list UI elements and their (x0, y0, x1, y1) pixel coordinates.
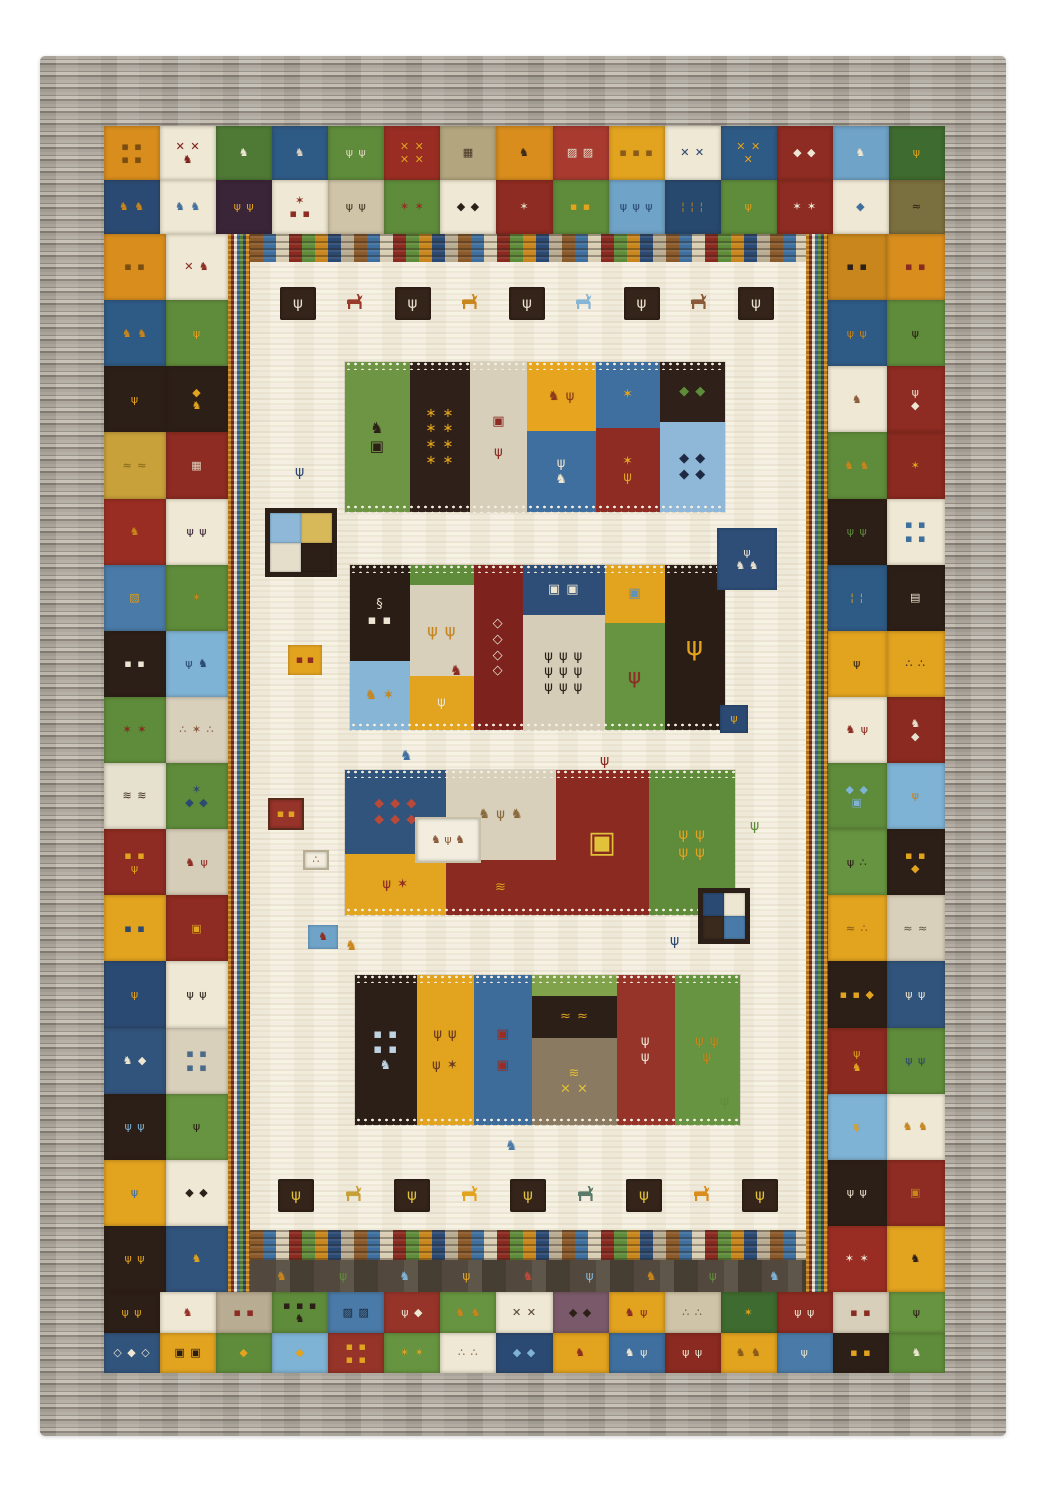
panel-motif-icon: ▪ ▪ ◆ (840, 988, 875, 1001)
dark-animal-band: ♞ψ♞ψ♞ψ♞ψ♞ (250, 1260, 806, 1292)
cluster-column: ψ ψ ψ ✶ (417, 975, 475, 1125)
field-accent-square: ♞ ψ ♞ (415, 817, 481, 863)
quad-cell (703, 916, 724, 939)
panel-motif-icon: ▣ ▣ (548, 582, 580, 598)
patch-cell: ▤ (887, 565, 946, 631)
patch-cell: ψ ψ (328, 126, 384, 180)
panel-motif-icon: ✶ ✶ (123, 723, 148, 736)
patch-cell: ▪ ▪ ▪ ▪ (104, 126, 160, 180)
panel-motif-icon: ψ ♞ (185, 657, 209, 670)
panel-motif-icon: ▪ ▪ ψ (124, 849, 145, 875)
patch-cell: ◆ (272, 1333, 328, 1374)
patch-cell: ✕ ✕ ✕ (721, 126, 777, 180)
tree-square-motif: ψ (738, 287, 774, 320)
patch-cell: ♞ (216, 126, 272, 180)
band-motif-icon: ψ (339, 1270, 347, 1282)
cluster-column: ▣ ψ (470, 362, 527, 512)
cluster-column: ♞ ψψ ♞ (527, 362, 595, 512)
patch-cell: ψ (166, 300, 228, 366)
scatter-motif-icon: ψ (670, 934, 679, 948)
panel-motif-icon: ◆ (239, 1346, 248, 1359)
patch-cluster: ▪ ▪ ▪ ▪ ♞ψ ψ ψ ✶▣ ▣≈ ≈≋ ✕ ✕ψ ψψ ψ ψ (355, 975, 740, 1125)
quad-cell (270, 543, 301, 573)
cluster-block: ✶ ψ (596, 428, 661, 512)
patch-cell: ♞ ♞ (104, 300, 166, 366)
panel-motif-icon: ψ ♞ ♞ (735, 546, 758, 572)
patch-cell: ≈ ≈ (104, 432, 166, 498)
patch-cell: ψ ψ (216, 180, 272, 234)
patch-cell: ψ (721, 180, 777, 234)
patch-cell: ≈ (889, 180, 945, 234)
patch-border-bottom: ψ ψ♞▪ ▪▪ ▪ ▪ ♞▨ ▨ψ ◆♞ ♞✕ ✕◆ ◆♞ ψ∴ ∴✶ψ ψ▪… (104, 1292, 945, 1373)
patch-cell: ♞ ψ (828, 697, 887, 763)
panel-motif-icon: ✶ ✶ (845, 1252, 870, 1265)
panel-motif-icon: ψ ψ ψ (620, 200, 654, 213)
panel-motif-icon: ψ ψ ψ ✶ (432, 1027, 459, 1074)
panel-motif-icon: ψ (131, 1186, 139, 1199)
panel-motif-icon: ▪ ▪ (847, 260, 868, 273)
panel-motif-icon: ▪ ▪ (850, 1306, 871, 1319)
panel-motif-icon: ¦ ¦ ¦ (681, 200, 704, 213)
panel-motif-icon: ≈ ≈ (903, 922, 928, 935)
panel-motif-icon: ✶ (519, 200, 529, 213)
patch-cluster: ♞ ▣∗ ∗ ∗ ∗ ∗ ∗ ∗ ∗▣ ψ♞ ψψ ♞✶✶ ψ◆ ◆◆ ◆ ◆ … (345, 362, 725, 512)
patch-border-top: ▪ ▪ ▪ ▪✕ ✕ ♞♞♞ψ ψ✕ ✕ ✕ ✕▦♞▨ ▨▪ ▪ ▪✕ ✕✕ ✕… (104, 126, 945, 234)
patch-cell: ♞ (889, 1333, 945, 1374)
panel-motif-icon: ♞ ◆ (123, 1054, 148, 1067)
patch-border-right: ▪ ▪ψ ψ♞♞ ♞ψ ψ¦ ¦ψ♞ ψ◆ ◆ ▣ψ ∴≈ ∴▪ ▪ ◆ψ ♞ψ… (828, 234, 945, 1292)
field-accent-square: ▪ ▪ (288, 645, 322, 675)
tree-square-motif: ψ (394, 1179, 430, 1212)
panel-motif-icon: ◆ ◆ ◆ ◆ ◆ ◆ (374, 796, 417, 827)
patch-cell: ◆ (833, 180, 889, 234)
panel-motif-icon: ψ ψ (346, 200, 367, 213)
panel-motif-icon: ψ ♞ (555, 456, 568, 487)
panel-motif-icon: ✶ ψ (622, 454, 634, 485)
tree-square-motif: ψ (278, 1179, 314, 1212)
patch-cell: ▣ ▣ (160, 1333, 216, 1374)
patch-cell: ¦ ¦ ¦ (665, 180, 721, 234)
panel-motif-icon: ψ ψ (124, 1120, 145, 1133)
panel-motif-icon: ψ (912, 789, 920, 802)
panel-motif-icon: ∴ (313, 853, 320, 866)
panel-motif-icon: ♞ ψ ♞ (478, 807, 523, 823)
patch-cell: ψ (887, 300, 946, 366)
panel-motif-icon: ψ (853, 1120, 861, 1133)
panel-motif-icon: ψ ψ (682, 1346, 703, 1359)
patch-cell: ψ ψ (828, 1160, 887, 1226)
patch-cell: ▪ ▪ (833, 1292, 889, 1333)
patch-cell: ψ ♞ (166, 631, 228, 697)
patch-cell: ▣ (166, 895, 228, 961)
patch-column: ✕ ♞ψ◆ ♞▦ψ ψ✶ψ ♞∴ ✶ ∴✶ ◆ ◆♞ ψ▣ψ ψ▪ ▪ ▪ ▪ψ… (166, 234, 228, 1292)
patch-cell: ♞ ♞ (887, 1094, 946, 1160)
panel-motif-icon: ▪ ▪ ▪ ▪ (121, 140, 142, 166)
panel-motif-icon: ≋ (495, 880, 507, 896)
goat-motif-icon (459, 293, 481, 313)
cluster-column: § ▪ ▪♞ ✶ (350, 565, 410, 730)
cluster-column: ψ ψ ψ (675, 975, 740, 1125)
patch-cell: ▪ ▪ ▪ ▪ (166, 1028, 228, 1094)
scatter-motif-icon: ♞ (450, 664, 463, 678)
patch-cell: ▪ ▪ (553, 180, 609, 234)
brick-band-top (250, 234, 806, 262)
patch-cell: ♞ ψ (166, 829, 228, 895)
panel-motif-icon: ψ ψ (427, 621, 456, 640)
panel-motif-icon: ψ ψ ψ ψ ψ ψ ψ ψ ψ (544, 649, 583, 696)
speckle-edge (350, 564, 725, 573)
branch-motif-icon: ψ (639, 1186, 649, 1204)
panel-motif-icon: ▪ ▪ (570, 200, 591, 213)
band-motif-icon: ♞ (523, 1270, 534, 1282)
strand-band-right (806, 234, 828, 1292)
panel-motif-icon: ♞ ψ ♞ (431, 833, 465, 846)
panel-motif-icon: ψ (745, 200, 753, 213)
patch-cell: ψ ψ (104, 1226, 166, 1292)
patch-cell: ∴ ∴ (665, 1292, 721, 1333)
panel-motif-icon: ✶ ✶ (400, 1346, 425, 1359)
panel-motif-icon: ♞ ♞ (122, 327, 148, 340)
panel-motif-icon: ▪ ▪ (124, 922, 145, 935)
band-motif-icon: ♞ (769, 1270, 780, 1282)
panel-motif-icon: ψ ∴ (847, 856, 868, 869)
patch-cell: ψ (828, 631, 887, 697)
panel-motif-icon: ψ ψ (186, 525, 207, 538)
panel-motif-icon: ψ ◆ (911, 386, 920, 412)
cluster-column: ♞ ▣ (345, 362, 410, 512)
patch-cell: ✶ ✶ (384, 1333, 440, 1374)
panel-motif-icon: ψ (628, 664, 642, 688)
patch-cell: ▪ ▪ (104, 234, 166, 300)
patch-cell: ψ (104, 1160, 166, 1226)
cluster-column: ▣ψ (605, 565, 665, 730)
panel-motif-icon: ▣ (191, 922, 202, 935)
panel-motif-icon: ◆ (295, 1346, 304, 1359)
tree-square-motif: ψ (626, 1179, 662, 1212)
panel-motif-icon: ▪ ▪ (850, 1346, 871, 1359)
panel-motif-icon: ♞ (192, 1252, 203, 1265)
patch-cell: ▪ ▪ ◆ (887, 829, 946, 895)
panel-motif-icon: § ▪ ▪ (368, 597, 393, 628)
scatter-motif-icon: ψ (720, 1094, 729, 1108)
patch-row: ▪ ▪ ▪ ▪✕ ✕ ♞♞♞ψ ψ✕ ✕ ✕ ✕▦♞▨ ▨▪ ▪ ▪✕ ✕✕ ✕… (104, 126, 945, 180)
patch-cell: ▪ ▪ (828, 234, 887, 300)
quad-cell (301, 543, 332, 573)
scatter-motif-icon: ♞ (505, 1139, 518, 1153)
panel-motif-icon: ♞ (519, 146, 530, 159)
patch-cell: ♞ ♞ (721, 1333, 777, 1374)
panel-motif-icon: ψ ψ ψ (695, 1034, 719, 1065)
tree-square-motif: ψ (280, 287, 316, 320)
cluster-block: ▣ ▣ (474, 975, 532, 1125)
patch-cell: ∴ ✶ ∴ (166, 697, 228, 763)
patch-cell: ▦ (440, 126, 496, 180)
field-accent-quad (698, 888, 750, 944)
panel-motif-icon: ♞ (575, 1346, 586, 1359)
patch-cell: ψ ♞ (828, 1028, 887, 1094)
panel-motif-icon: ✶ ▪ ▪ (290, 194, 311, 220)
patch-cell: ◆ ◆ (553, 1292, 609, 1333)
patch-cell: ♞ ♞ (104, 180, 160, 234)
panel-motif-icon: ♞ ♞ (844, 459, 870, 472)
panel-motif-icon: ✶ (911, 459, 921, 472)
branch-motif-icon: ψ (755, 1186, 765, 1204)
patch-cell: ψ ∴ (828, 829, 887, 895)
field-accent-square: ψ (720, 705, 748, 733)
patch-cell: ◇ ◆ ◇ (104, 1333, 160, 1374)
panel-motif-icon: ♞ ◆ (910, 717, 921, 743)
patch-cell: ψ (887, 763, 946, 829)
patch-cell: ◆ ◆ (166, 1160, 228, 1226)
panel-motif-icon: ψ ◆ (401, 1306, 423, 1319)
branch-motif-icon: ψ (408, 294, 418, 312)
panel-motif-icon: ∴ ∴ (906, 657, 927, 670)
cluster-column: ▣ ▣ (474, 975, 532, 1125)
patch-cell: ψ (889, 126, 945, 180)
panel-motif-icon: ◆ ◆ (793, 146, 816, 159)
tree-square-motif: ψ (742, 1179, 778, 1212)
panel-motif-icon: ▣ (628, 586, 641, 602)
panel-motif-icon: ψ (131, 393, 139, 406)
photo-background: ▪ ▪ ▪ ▪✕ ✕ ♞♞♞ψ ψ✕ ✕ ✕ ✕▦♞▨ ▨▪ ▪ ▪✕ ✕✕ ✕… (0, 0, 1049, 1500)
panel-motif-icon: ✶ ✶ (400, 200, 425, 213)
field-accent-square: ∴ (303, 850, 329, 870)
cluster-column: ▣ (556, 770, 650, 915)
panel-motif-icon: ▪ ▪ ◆ (905, 849, 926, 875)
patch-cell: ▪ ▪ ▪ ▪ (328, 1333, 384, 1374)
cluster-block: ≋ ✕ ✕ (532, 1038, 617, 1125)
patch-cell: ψ ψ (777, 1292, 833, 1333)
panel-motif-icon: ψ (193, 1120, 201, 1133)
patch-cell: ✶ ✶ (384, 180, 440, 234)
patch-cell: ∴ ∴ (440, 1333, 496, 1374)
panel-motif-icon: ≈ ≈ (560, 1009, 589, 1025)
panel-motif-icon: ▣ (588, 825, 617, 861)
speckle-edge (345, 504, 725, 513)
patch-cell: ψ ψ (166, 499, 228, 565)
cluster-block: ▣ (556, 770, 650, 915)
patch-cell: ψ ψ (104, 1292, 160, 1333)
panel-motif-icon: ◆ ◆ (457, 200, 480, 213)
patch-cell: ▨ ▨ (553, 126, 609, 180)
panel-motif-icon: ▪ ▪ (124, 657, 145, 670)
panel-motif-icon: ✶ (192, 591, 202, 604)
patch-cell: ▦ (166, 432, 228, 498)
cluster-column: ◆ ◆◆ ◆ ◆ ◆ (660, 362, 725, 512)
cluster-block: ψ ψ ψ ψ ψ ψ ψ ψ ψ (523, 615, 606, 731)
cluster-block: ▪ ▪ ▪ ▪ ♞ (355, 975, 417, 1125)
patch-cell: ▪ ▪ ψ (104, 829, 166, 895)
panel-motif-icon: ◆ ◆ (513, 1346, 536, 1359)
panel-motif-icon: ψ ψ (847, 1186, 868, 1199)
patch-cell: ✶ (887, 432, 946, 498)
patch-cell: ♞ (887, 1226, 946, 1292)
cluster-column: ψ ψψ (410, 565, 474, 730)
cluster-column: ψ (665, 565, 725, 730)
patch-cell: ▪ ▪ (104, 631, 166, 697)
cluster-block: ✶ (596, 362, 661, 428)
panel-motif-icon: ψ ψ (794, 1306, 815, 1319)
band-motif-icon: ψ (709, 1270, 717, 1282)
cluster-block: § ▪ ▪ (350, 565, 410, 661)
panel-motif-icon: ♞ (183, 1306, 194, 1319)
panel-motif-icon: ✕ ✕ ✕ (736, 140, 761, 166)
speckle-edge (355, 1117, 740, 1126)
patch-row: ◇ ◆ ◇▣ ▣◆◆▪ ▪ ▪ ▪✶ ✶∴ ∴◆ ◆♞♞ ψψ ψ♞ ♞ψ▪ ▪… (104, 1333, 945, 1374)
patch-cell: ▪ ▪ ▪ (609, 126, 665, 180)
patch-cell: ♞ (160, 1292, 216, 1333)
panel-motif-icon: ψ (912, 327, 920, 340)
panel-motif-icon: ♞ (318, 930, 328, 943)
quad-cell (301, 513, 332, 543)
panel-motif-icon: ψ (913, 146, 921, 159)
panel-motif-icon: ▣ ▣ (174, 1346, 201, 1359)
patch-cell: ≈ ∴ (828, 895, 887, 961)
patch-cell: ¦ ¦ (828, 565, 887, 631)
band-motif-icon: ♞ (276, 1270, 287, 1282)
field-accent-quad (265, 508, 337, 577)
patch-column: ▪ ▪ψψ ◆✶▪ ▪ ▪ ▪▤∴ ∴♞ ◆ψ▪ ▪ ◆≈ ≈ψ ψψ ψ♞ ♞… (887, 234, 946, 1292)
cluster-block: ψ (665, 565, 725, 730)
patch-cell: ✕ ✕ (665, 126, 721, 180)
brick-band-bottom (250, 1230, 806, 1260)
goat-motif-icon (575, 1185, 597, 1205)
panel-motif-icon: ≋ ≋ (123, 789, 148, 802)
branch-motif-icon: ψ (291, 1186, 301, 1204)
cluster-block: ψ ψ (410, 585, 474, 676)
patch-cell: ψ ψ ψ (609, 180, 665, 234)
cluster-block: ♞ ψ (527, 362, 595, 431)
patch-cell: ♞ ◆ (104, 1028, 166, 1094)
patch-cell: ψ (889, 1292, 945, 1333)
patch-cell: ♞ (828, 366, 887, 432)
patch-cell: ≈ ≈ (887, 895, 946, 961)
cluster-block: ψ ψ (617, 975, 675, 1125)
cluster-column: ≈ ≈≋ ✕ ✕ (532, 975, 617, 1125)
speckle-edge (355, 974, 740, 983)
patch-cell: ♞ (496, 126, 552, 180)
cluster-block: ▣ (605, 565, 665, 623)
scatter-motif-icon: ♞ (345, 939, 358, 953)
panel-motif-icon: ◆ ◆ (185, 1186, 208, 1199)
quad-cell (724, 916, 745, 939)
cluster-block: ψ ψ ψ (675, 975, 740, 1125)
patch-column: ▪ ▪♞ ♞ψ≈ ≈♞▨▪ ▪✶ ✶≋ ≋▪ ▪ ψ▪ ▪ψ♞ ◆ψ ψψψ ψ (104, 234, 166, 1292)
panel-motif-icon: ψ ψ (234, 200, 255, 213)
panel-motif-icon: ◆ ◆ (569, 1306, 592, 1319)
patch-cell: ✶ (721, 1292, 777, 1333)
patch-cell: ψ ψ (104, 1094, 166, 1160)
panel-motif-icon: ▣ ▣ (497, 1027, 510, 1074)
panel-motif-icon: ≈ ≈ (123, 459, 148, 472)
patch-cell: ψ ◆ (384, 1292, 440, 1333)
panel-motif-icon: ◆ ◆ (679, 384, 706, 400)
patch-cell: ▨ (104, 565, 166, 631)
patch-cell: ✶ (166, 565, 228, 631)
cluster-block: ♞ ▣ (345, 362, 410, 512)
patch-cell: ♞ ♞ (828, 432, 887, 498)
panel-motif-icon: ✕ ♞ (184, 260, 210, 273)
scatter-motif-icon: ψ (295, 465, 304, 479)
panel-motif-icon: ♞ ♞ (119, 200, 145, 213)
cluster-block: ◇ ◇ ◇ ◇ (474, 565, 523, 730)
panel-motif-icon: ≋ ✕ ✕ (560, 1066, 589, 1097)
panel-motif-icon: ▪ ▪ (296, 653, 314, 666)
panel-motif-icon: ✕ ✕ (680, 146, 705, 159)
tree-square-motif: ψ (509, 287, 545, 320)
panel-motif-icon: ♞ (910, 1252, 921, 1265)
panel-motif-icon: ◆ (856, 200, 865, 213)
panel-motif-icon: ≈ ∴ (846, 922, 869, 935)
quad-cell (270, 513, 301, 543)
speckle-edge (345, 769, 735, 778)
patch-cell: ▪ ▪ ▪ ▪ (887, 499, 946, 565)
panel-motif-icon: ▨ (129, 591, 140, 604)
panel-motif-icon: ✶ ✶ (792, 200, 817, 213)
panel-motif-icon: ψ ψ ψ ψ (678, 825, 706, 861)
patch-cell: ψ ψ (887, 961, 946, 1027)
patch-cell: ψ (828, 1094, 887, 1160)
panel-motif-icon: ♞ (295, 146, 306, 159)
tree-square-row-top: ψψψψψ (280, 282, 774, 324)
panel-motif-icon: ▪ ▪ (124, 260, 145, 273)
branch-motif-icon: ψ (751, 294, 761, 312)
panel-motif-icon: ♞ ♞ (175, 200, 201, 213)
patch-cell: ψ (104, 961, 166, 1027)
panel-motif-icon: ♞ ψ (845, 723, 869, 736)
patch-row: ♞ ♞♞ ♞ψ ψ✶ ▪ ▪ψ ψ✶ ✶◆ ◆✶▪ ▪ψ ψ ψ¦ ¦ ¦ψ✶ … (104, 180, 945, 234)
branch-motif-icon: ψ (637, 294, 647, 312)
panel-motif-icon: ψ (686, 632, 704, 663)
panel-motif-icon: ψ (913, 1306, 921, 1319)
panel-motif-icon: ψ ψ (346, 146, 367, 159)
branch-motif-icon: ψ (522, 294, 532, 312)
patch-cluster: ◆ ◆ ◆ ◆ ◆ ◆ψ ✶♞ ψ ♞≋▣ψ ψ ψ ψ (345, 770, 735, 915)
panel-motif-icon: ✕ ✕ ✕ ✕ (400, 140, 425, 166)
panel-motif-icon: ✕ ✕ (512, 1306, 537, 1319)
panel-motif-icon: ψ ✶ (382, 877, 409, 893)
panel-motif-icon: ▦ (463, 146, 474, 159)
patch-cell: ▪ ▪ (104, 895, 166, 961)
band-motif-icon: ♞ (399, 1270, 410, 1282)
panel-motif-icon: ♞ (911, 1346, 922, 1359)
panel-motif-icon: ▪ ▪ (277, 807, 295, 820)
band-motif-icon: ψ (462, 1270, 470, 1282)
panel-motif-icon: ◆ ◆ ◆ ◆ (679, 451, 706, 482)
panel-motif-icon: ♞ ψ (625, 1306, 649, 1319)
cream-field: ψψψψψ ψψψψψ ♞ ▣∗ ∗ ∗ ∗ ∗ ∗ ∗ ∗▣ ψ♞ ψψ ♞✶… (250, 262, 806, 1230)
cluster-block: ψ ♞ (527, 431, 595, 512)
panel-motif-icon: ψ ψ (905, 988, 926, 1001)
scatter-motif-icon: ♞ (400, 749, 413, 763)
patch-cell: ▣ (887, 1160, 946, 1226)
patch-border-left: ▪ ▪♞ ♞ψ≈ ≈♞▨▪ ▪✶ ✶≋ ≋▪ ▪ ψ▪ ▪ψ♞ ◆ψ ψψψ ψ… (104, 234, 228, 1292)
patch-cell: ✶ ✶ (777, 180, 833, 234)
patch-cell: ✶ (496, 180, 552, 234)
patch-cell: ✕ ✕ ✕ ✕ (384, 126, 440, 180)
panel-motif-icon: ψ (131, 988, 139, 1001)
cluster-column: ▪ ▪ ▪ ▪ ♞ (355, 975, 417, 1125)
panel-motif-icon: ◇ ◆ ◇ (113, 1346, 150, 1359)
cluster-block: ≈ ≈ (532, 996, 617, 1038)
panel-motif-icon: ▪ ▪ (905, 260, 926, 273)
panel-motif-icon: ♞ ▣ (370, 419, 385, 455)
panel-motif-icon: ▤ (910, 591, 921, 604)
panel-motif-icon: ▪ ▪ (233, 1306, 254, 1319)
patch-cell: ≋ ≋ (104, 763, 166, 829)
patch-cell: ♞ (833, 126, 889, 180)
band-motif-icon: ♞ (646, 1270, 657, 1282)
